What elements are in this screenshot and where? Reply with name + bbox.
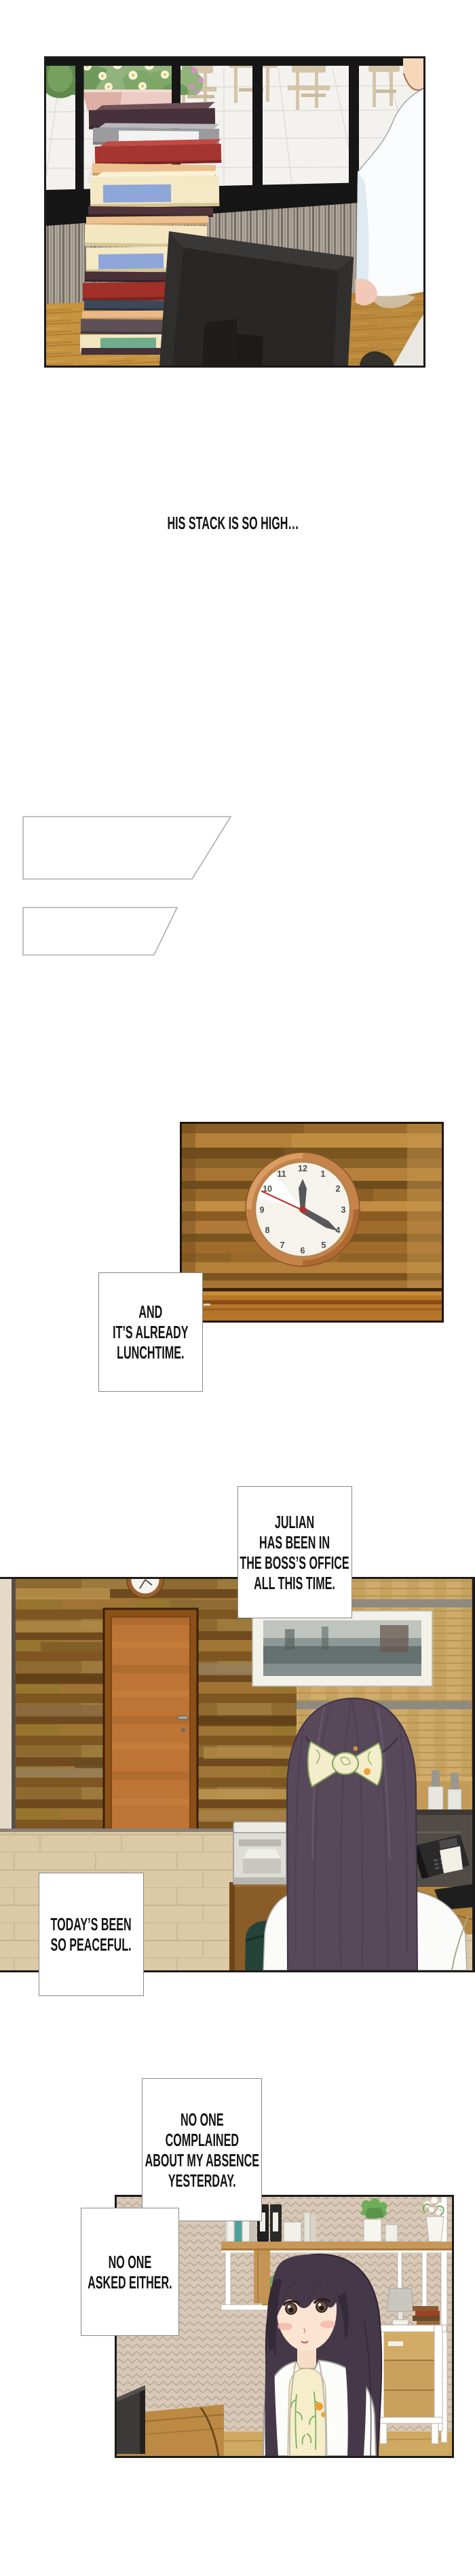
svg-text:8: 8 — [265, 1226, 270, 1235]
svg-text:7: 7 — [280, 1241, 285, 1250]
svg-text:6: 6 — [301, 1246, 305, 1255]
svg-text:11: 11 — [277, 1169, 286, 1179]
svg-text:2: 2 — [336, 1184, 341, 1194]
svg-text:5: 5 — [322, 1241, 326, 1250]
svg-text:9: 9 — [260, 1205, 265, 1215]
svg-text:1: 1 — [321, 1169, 326, 1179]
svg-text:3: 3 — [341, 1205, 346, 1215]
svg-text:12: 12 — [298, 1164, 307, 1173]
